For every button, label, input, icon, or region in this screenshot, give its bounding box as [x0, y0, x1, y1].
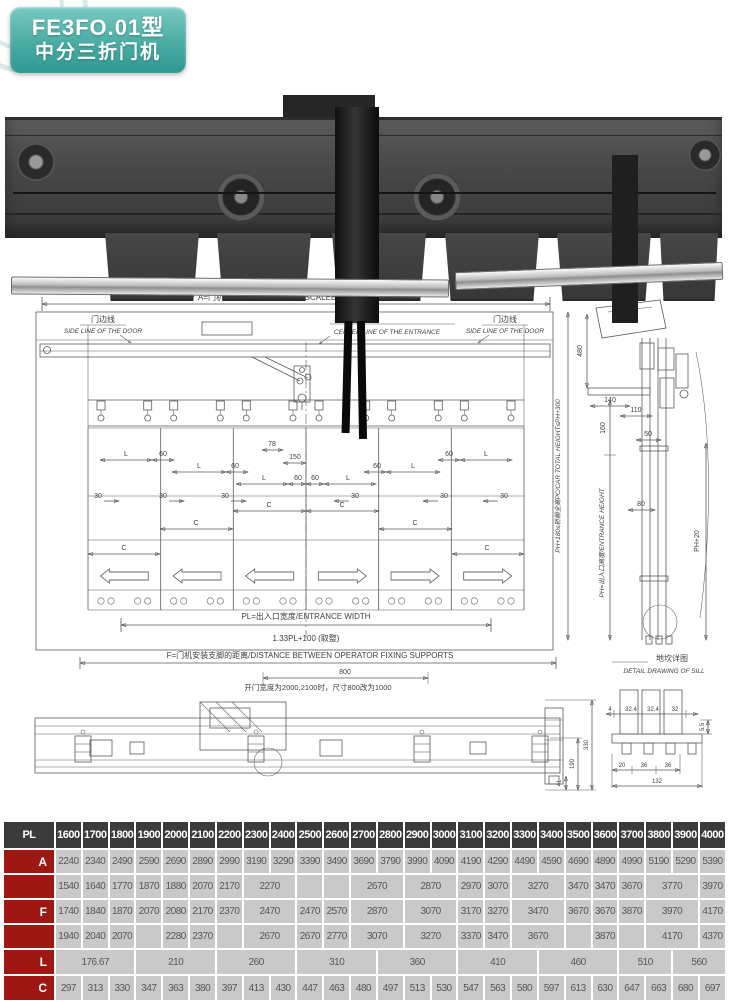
table-cell: 1770 — [110, 875, 135, 898]
hanger-roller — [170, 401, 178, 410]
header-cell: 1600 — [56, 822, 81, 848]
dim-label: 20 — [619, 763, 626, 769]
table-cell: 3770 — [646, 875, 698, 898]
table-cell: 2870 — [351, 900, 403, 923]
table-cell — [619, 925, 644, 948]
table-cell: 1840 — [83, 900, 108, 923]
guide-shoe — [461, 598, 467, 604]
table-cell — [136, 925, 161, 948]
dim-label: C — [121, 545, 126, 552]
table-cell: 4490 — [512, 850, 537, 873]
arrow-left-icon — [246, 569, 294, 583]
opening-width-note: 开门宽度为2000,2100时，尺寸800改为1000 — [244, 682, 391, 692]
header-cell: 3700 — [619, 822, 644, 848]
table-cell: 1870 — [136, 875, 161, 898]
table-cell: 310 — [297, 950, 375, 974]
table-cell: 2170 — [217, 875, 242, 898]
table-cell: 2070 — [110, 925, 135, 948]
entrance-width-formula: 1.33PL+100 (取整) — [273, 633, 340, 643]
dim-label: 160 — [600, 422, 607, 434]
dim-label: 60 — [373, 463, 381, 470]
header-cell: 2400 — [271, 822, 296, 848]
table-cell: 3970 — [646, 900, 698, 923]
guide-shoe — [471, 598, 477, 604]
hanger-roller — [243, 415, 249, 421]
table-cell: 463 — [324, 976, 349, 1000]
table-cell: 3370 — [458, 925, 483, 948]
table-cell: 2890 — [190, 850, 215, 873]
row-label: F — [4, 900, 54, 923]
table-cell: 3670 — [619, 875, 644, 898]
header-cell: 2000 — [163, 822, 188, 848]
drive-sheave — [217, 173, 265, 221]
table-cell: 3990 — [405, 850, 430, 873]
dim-label: L — [411, 463, 415, 470]
dim-label: 60 — [311, 475, 319, 482]
table-cell: 497 — [378, 976, 403, 1000]
guide-shoe — [98, 598, 104, 604]
table-cell: 2370 — [217, 900, 242, 923]
datasheet-page: { "badge": { "model": "FE3FO.01型", "name… — [0, 0, 729, 988]
hanger-roller — [460, 401, 468, 410]
table-cell: 2670 — [351, 875, 403, 898]
table-cell: 297 — [56, 976, 81, 1000]
dim-label: 150 — [289, 454, 301, 461]
table-cell: 1880 — [163, 875, 188, 898]
hanger-roller — [98, 415, 104, 421]
dim-label: 36 — [665, 763, 672, 769]
table-cell: 2240 — [56, 850, 81, 873]
mounting-bracket — [612, 155, 638, 323]
table-cell: 597 — [539, 976, 564, 1000]
sill-title-cn: 地坎详图 — [656, 653, 688, 663]
dim-label: L — [197, 463, 201, 470]
header-cell: 4000 — [700, 822, 725, 848]
table-cell: 210 — [136, 950, 214, 974]
sill-title-en: DETAIL DRAWING OF SILL — [623, 668, 705, 675]
arrow-left-icon — [100, 569, 148, 583]
support-foot — [75, 736, 91, 762]
table-cell: 2670 — [244, 925, 296, 948]
table-cell: 260 — [217, 950, 295, 974]
sill-detail: 地坎详图 DETAIL DRAWING OF SILL 4 32.4 32.4 … — [606, 653, 712, 788]
model-number: FE3FO.01型 — [32, 15, 164, 41]
hanger-roller — [388, 401, 396, 410]
hanger-roller — [171, 415, 177, 421]
table-cell: 3470 — [485, 925, 510, 948]
header-cell: 3500 — [566, 822, 591, 848]
table-cell: 680 — [673, 976, 698, 1000]
header-cell: 2800 — [378, 822, 403, 848]
table-cell: 2070 — [190, 875, 215, 898]
dim-label: 30 — [94, 493, 102, 500]
table-cell: 4090 — [432, 850, 457, 873]
table-cell: 3470 — [593, 875, 618, 898]
table-cell: 4590 — [539, 850, 564, 873]
dim-label: 32 — [672, 707, 679, 713]
guide-shoe — [145, 598, 151, 604]
table-cell: 2490 — [110, 850, 135, 873]
table-cell: 3070 — [485, 875, 510, 898]
end-pulley — [17, 143, 55, 181]
sill-rail — [11, 276, 449, 297]
header-cell: 2900 — [405, 822, 430, 848]
table-cell: 2070 — [136, 900, 161, 923]
table-cell: 663 — [646, 976, 671, 1000]
arrow-right-icon — [318, 569, 366, 583]
dim-label: 60 — [294, 475, 302, 482]
table-row: C297313330347363380397413430447463480497… — [4, 976, 725, 1000]
table-cell: 3470 — [566, 875, 591, 898]
table-cell: 2280 — [163, 925, 188, 948]
dim-label: 5.5 — [700, 722, 706, 731]
dim-label: L — [124, 451, 128, 458]
table-row: A224023402490259026902890299031903290339… — [4, 850, 725, 873]
table-cell: 2080 — [163, 900, 188, 923]
table-cell: 330 — [110, 976, 135, 1000]
dim-label: 30 — [440, 493, 448, 500]
plan-view-drawing: F=门机安装支脚的距离/DISTANCE BETWEEN OPERATOR FI… — [0, 650, 729, 820]
guide-shoe — [253, 598, 259, 604]
hanger-roller — [242, 401, 250, 410]
dim-label: 110 — [630, 407, 641, 414]
cross-section-dimensions: PH+180≤轿厢全高PC/CAR TOTAL HEIGHT≤PH+300 48… — [554, 312, 706, 640]
table-cell: 447 — [297, 976, 322, 1000]
guide-shoe — [389, 598, 395, 604]
hanger-roller — [144, 401, 152, 410]
dim-label: L — [262, 475, 266, 482]
guide-shoe — [498, 598, 504, 604]
table-cell: 413 — [244, 976, 269, 1000]
header-cell: 3200 — [485, 822, 510, 848]
table-cell: 480 — [351, 976, 376, 1000]
table-cell: 4370 — [700, 925, 725, 948]
hanger-roller — [389, 415, 395, 421]
table-cell: 3970 — [700, 875, 725, 898]
row-label — [4, 875, 54, 898]
car-height-label: PH+180≤轿厢全高PC/CAR TOTAL HEIGHT≤PH+300 — [554, 399, 562, 553]
table-cell: 1870 — [110, 900, 135, 923]
table-cell: 347 — [136, 976, 161, 1000]
table-cell — [297, 875, 322, 898]
dim-label: C — [339, 502, 344, 509]
row-label: A — [4, 850, 54, 873]
guide-shoe — [207, 598, 213, 604]
dim-label: 78 — [268, 441, 276, 448]
table-cell: 5190 — [646, 850, 671, 873]
dim-label: 800 — [339, 669, 351, 676]
table-cell: 397 — [217, 976, 242, 1000]
dim-label: 32.4 — [625, 707, 637, 713]
table-cell: 2570 — [324, 900, 349, 923]
table-cell: 4170 — [646, 925, 698, 948]
dim-label: C — [266, 502, 271, 509]
hanger-roller — [216, 401, 224, 410]
hanger-roller — [217, 415, 223, 421]
table-cell: 2340 — [83, 850, 108, 873]
entrance-width-label: PL=出入口宽度/ENTRANCE WIDTH — [241, 611, 370, 621]
header-cell: 3600 — [593, 822, 618, 848]
dim-label: 480 — [577, 345, 584, 357]
table-cell: 3690 — [351, 850, 376, 873]
dim-label: 30 — [351, 493, 359, 500]
header-cell: 2200 — [217, 822, 242, 848]
table-cell: 547 — [458, 976, 483, 1000]
row-label — [4, 925, 54, 948]
table-cell: 313 — [83, 976, 108, 1000]
guide-shoe — [171, 598, 177, 604]
table-cell: 3390 — [297, 850, 322, 873]
guide-shoe — [135, 598, 141, 604]
dim-label: 50 — [644, 431, 652, 438]
table-cell: 530 — [432, 976, 457, 1000]
table-cell: 2170 — [190, 900, 215, 923]
table-cell: 1640 — [83, 875, 108, 898]
table-cell: 2470 — [244, 900, 296, 923]
table-cell: 3270 — [485, 900, 510, 923]
header-cell: 1900 — [136, 822, 161, 848]
drive-sheave — [413, 173, 461, 221]
table-cell: 4190 — [458, 850, 483, 873]
table-cell: PL — [4, 822, 54, 848]
hanger-roller — [97, 401, 105, 410]
table-cell: 176.67 — [56, 950, 134, 974]
table-cell: 580 — [512, 976, 537, 1000]
row-label: C — [4, 976, 54, 1000]
coupler-blade — [357, 321, 367, 439]
guide-shoe — [290, 598, 296, 604]
guide-shoe — [280, 598, 286, 604]
table-cell: 3870 — [619, 900, 644, 923]
dim-label: 60 — [231, 463, 239, 470]
dim-label: C — [412, 520, 417, 527]
table-cell: 4290 — [485, 850, 510, 873]
dim-label: 30 — [500, 493, 508, 500]
dim-label: 32.4 — [647, 707, 659, 713]
operator-plan-view — [35, 702, 560, 776]
door-panels — [88, 401, 524, 610]
header-cell: 3300 — [512, 822, 537, 848]
operator-side-view: 41 190 330 — [545, 700, 596, 790]
guide-shoe — [243, 598, 249, 604]
guide-shoe — [425, 598, 431, 604]
guide-shoe — [508, 598, 514, 604]
table-cell: 563 — [485, 976, 510, 1000]
table-cell: 630 — [593, 976, 618, 1000]
fixing-supports — [75, 730, 548, 762]
table-cell: 363 — [163, 976, 188, 1000]
table-cell: 5290 — [673, 850, 698, 873]
header-cell: 2600 — [324, 822, 349, 848]
fixing-supports-label: F=门机安装支脚的距离/DISTANCE BETWEEN OPERATOR FI… — [167, 650, 454, 660]
table-cell: 1940 — [56, 925, 81, 948]
arrow-right-icon — [391, 569, 439, 583]
header-cell: 1800 — [110, 822, 135, 848]
table-cell: 3870 — [593, 925, 618, 948]
table-cell: 4170 — [700, 900, 725, 923]
header-cell: 3100 — [458, 822, 483, 848]
table-cell: 2870 — [405, 875, 457, 898]
table-row: PL16001700180019002000210022002300240025… — [4, 822, 725, 848]
table-cell: 460 — [539, 950, 617, 974]
guide-shoe — [217, 598, 223, 604]
dim-label: 36 — [641, 763, 648, 769]
guide-shoe — [363, 598, 369, 604]
end-pulley — [689, 139, 721, 171]
hanger-roller — [507, 401, 515, 410]
guide-shoe — [326, 598, 332, 604]
header-cell: 3800 — [646, 822, 671, 848]
header-cell: 3900 — [673, 822, 698, 848]
dim-label: 60 — [445, 451, 453, 458]
dim-label: PH+20 — [694, 530, 701, 552]
dim-label: 132 — [652, 779, 663, 785]
table-cell: 647 — [619, 976, 644, 1000]
table-cell: 4690 — [566, 850, 591, 873]
guide-shoe — [181, 598, 187, 604]
dim-label: 60 — [159, 451, 167, 458]
table-cell: 613 — [566, 976, 591, 1000]
hanger-roller — [316, 415, 322, 421]
table-cell: 2990 — [217, 850, 242, 873]
hanger-plate — [445, 233, 539, 301]
table-cell: 4990 — [619, 850, 644, 873]
table-cell: 2970 — [458, 875, 483, 898]
header-cell: 2100 — [190, 822, 215, 848]
table-cell: 3290 — [271, 850, 296, 873]
table-cell: 2370 — [190, 925, 215, 948]
guide-shoe — [399, 598, 405, 604]
table-cell: 3470 — [512, 900, 564, 923]
table-cell: 410 — [458, 950, 536, 974]
table-cell: 3190 — [244, 850, 269, 873]
table-row: 1540164017701870188020702170227026702870… — [4, 875, 725, 898]
arrow-right-icon — [464, 569, 512, 583]
table-cell: 3070 — [351, 925, 403, 948]
table-cell: 380 — [190, 976, 215, 1000]
dim-label: L — [484, 451, 488, 458]
entrance-height-label: PH=出入口高度/ENTRANCE HEIGHT — [598, 487, 606, 597]
table-cell: 2770 — [324, 925, 349, 948]
table-cell: 3170 — [458, 900, 483, 923]
table-cell: 3790 — [378, 850, 403, 873]
table-row: F174018401870207020802170237024702470257… — [4, 900, 725, 923]
dim-label: C — [193, 520, 198, 527]
table-row: 1940204020702280237026702670277030703270… — [4, 925, 725, 948]
arrow-left-icon — [173, 569, 221, 583]
dim-label: 330 — [584, 739, 590, 750]
guide-shoe — [353, 598, 359, 604]
dim-label: 30 — [221, 493, 229, 500]
parameter-table: PL16001700180019002000210022002300240025… — [2, 820, 727, 1002]
hanger-roller — [315, 401, 323, 410]
table-cell: 430 — [271, 976, 296, 1000]
header-cell: 1700 — [83, 822, 108, 848]
support-foot — [414, 736, 430, 762]
dim-label: 80 — [637, 501, 645, 508]
table-cell: 513 — [405, 976, 430, 1000]
hanger-roller — [434, 401, 442, 410]
table-cell: 510 — [619, 950, 671, 974]
header-cell: 2700 — [351, 822, 376, 848]
table-cell: 3670 — [512, 925, 564, 948]
table-cell: 3270 — [512, 875, 564, 898]
table-cell: 1740 — [56, 900, 81, 923]
table-cell — [324, 875, 349, 898]
dim-label: 190 — [570, 758, 576, 769]
table-cell — [217, 925, 242, 948]
table-cell: 2590 — [136, 850, 161, 873]
header-cell: 3000 — [432, 822, 457, 848]
table-cell: 2040 — [83, 925, 108, 948]
table-cell: 1540 — [56, 875, 81, 898]
table-cell: 3270 — [405, 925, 457, 948]
product-photo — [5, 95, 724, 345]
table-cell: 3490 — [324, 850, 349, 873]
table-row: L176.67210260310360410460510560 — [4, 950, 725, 974]
table-cell: 4890 — [593, 850, 618, 873]
table-cell: 2690 — [163, 850, 188, 873]
table-cell: 5390 — [700, 850, 725, 873]
table-cell: 3070 — [405, 900, 457, 923]
hanger-roller — [461, 415, 467, 421]
table-cell: 2470 — [297, 900, 322, 923]
dim-label: 41 — [557, 779, 563, 786]
table-cell — [566, 925, 591, 948]
cross-section-view — [588, 300, 709, 644]
dim-label: L — [346, 475, 350, 482]
dim-label: 4 — [608, 707, 612, 713]
table-cell: 697 — [700, 976, 725, 1000]
row-label: L — [4, 950, 54, 974]
dim-label: 30 — [159, 493, 167, 500]
header-cell: 2500 — [297, 822, 322, 848]
hanger-roller — [145, 415, 151, 421]
table-cell: 3670 — [593, 900, 618, 923]
header-cell: 3400 — [539, 822, 564, 848]
table-cell: 2270 — [244, 875, 296, 898]
guide-shoe — [435, 598, 441, 604]
support-foot — [248, 736, 264, 762]
table-cell: 2670 — [297, 925, 322, 948]
table-cell: 560 — [673, 950, 725, 974]
hanger-roller — [508, 415, 514, 421]
hanger-roller — [435, 415, 441, 421]
guide-shoe — [316, 598, 322, 604]
header-cell: 2300 — [244, 822, 269, 848]
guide-shoe — [108, 598, 114, 604]
hanger-roller — [290, 415, 296, 421]
model-badge: FE3FO.01型 中分三折门机 — [10, 7, 186, 73]
dim-label: C — [484, 545, 489, 552]
model-name: 中分三折门机 — [35, 42, 161, 65]
table-cell: 3670 — [566, 900, 591, 923]
table-cell: 360 — [378, 950, 456, 974]
